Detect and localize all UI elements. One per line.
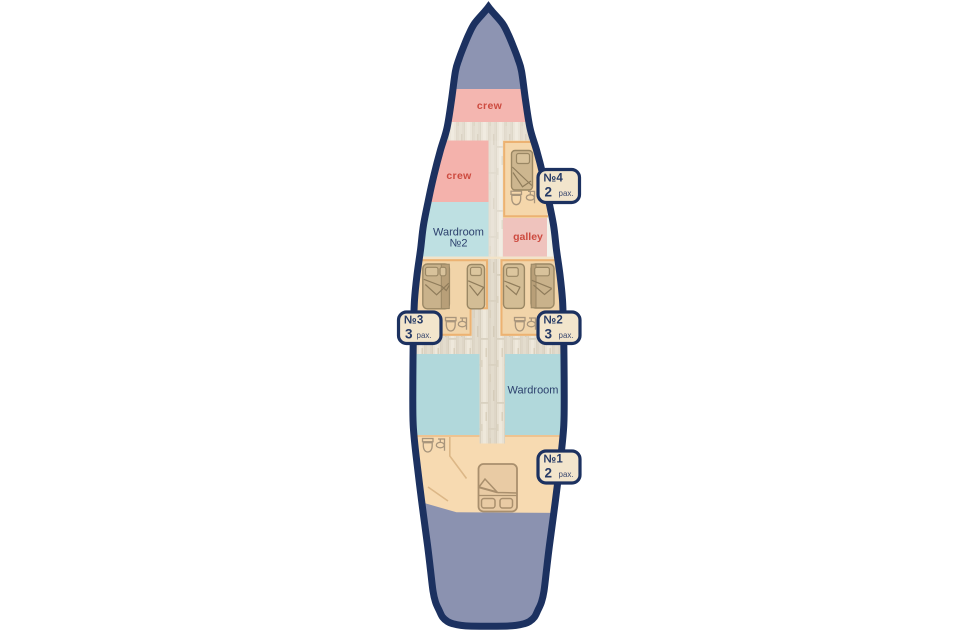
svg-text:№4: №4 [544, 173, 564, 185]
svg-text:pax.: pax. [559, 189, 574, 198]
svg-text:№1: №1 [544, 454, 564, 466]
svg-text:2: 2 [545, 466, 553, 481]
svg-text:pax.: pax. [417, 331, 432, 340]
svg-text:pax.: pax. [559, 470, 574, 479]
svg-text:pax.: pax. [559, 331, 574, 340]
svg-text:№2: №2 [544, 315, 563, 327]
svg-text:3: 3 [405, 327, 413, 342]
svg-text:crew: crew [446, 170, 472, 182]
svg-text:galley: galley [513, 231, 543, 243]
svg-text:crew: crew [477, 100, 503, 112]
svg-text:2: 2 [545, 185, 553, 200]
svg-text:№2: №2 [450, 238, 468, 250]
svg-text:Wardroom: Wardroom [508, 385, 559, 397]
svg-text:№3: №3 [404, 315, 423, 327]
svg-text:3: 3 [545, 327, 553, 342]
